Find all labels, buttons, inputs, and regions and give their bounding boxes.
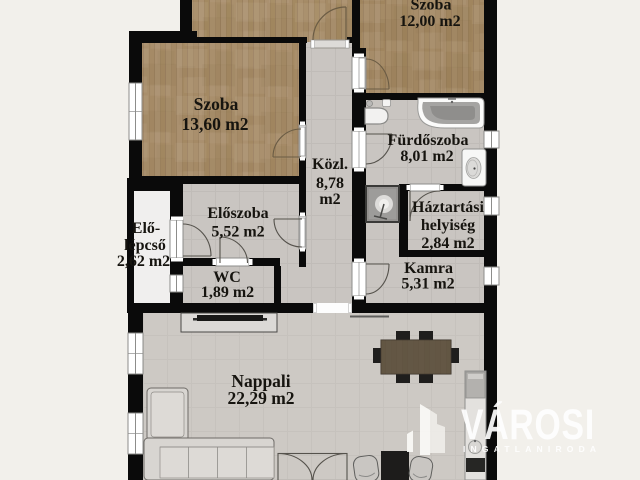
- svg-text:8,78: 8,78: [316, 175, 344, 192]
- svg-text:2,84 m2: 2,84 m2: [421, 235, 474, 252]
- svg-text:helyiség: helyiség: [421, 217, 475, 234]
- svg-text:Elő-: Elő-: [132, 220, 160, 237]
- svg-text:VÁROSI: VÁROSI: [461, 401, 595, 449]
- svg-text:Előszoba: Előszoba: [207, 205, 268, 222]
- svg-text:Háztartási: Háztartási: [412, 199, 485, 216]
- svg-text:Szoba: Szoba: [194, 94, 239, 114]
- svg-text:5,52 m2: 5,52 m2: [211, 224, 264, 241]
- svg-text:Szoba: Szoba: [411, 0, 452, 14]
- svg-text:5,31 m2: 5,31 m2: [401, 276, 454, 293]
- svg-text:lépcső: lépcső: [124, 237, 166, 254]
- svg-text:m2: m2: [319, 191, 340, 208]
- svg-text:13,60 m2: 13,60 m2: [181, 114, 248, 134]
- svg-text:2,62 m2: 2,62 m2: [117, 253, 170, 270]
- svg-text:1,89 m2: 1,89 m2: [201, 284, 254, 301]
- svg-text:INGATLANIRODA: INGATLANIRODA: [463, 444, 601, 454]
- svg-text:8,01 m2: 8,01 m2: [400, 148, 453, 165]
- svg-text:22,29 m2: 22,29 m2: [227, 388, 294, 408]
- svg-text:12,00 m2: 12,00 m2: [399, 13, 460, 30]
- svg-text:Kamra: Kamra: [404, 260, 453, 277]
- svg-text:Közl.: Közl.: [312, 156, 348, 173]
- svg-text:Fürdőszoba: Fürdőszoba: [388, 132, 469, 149]
